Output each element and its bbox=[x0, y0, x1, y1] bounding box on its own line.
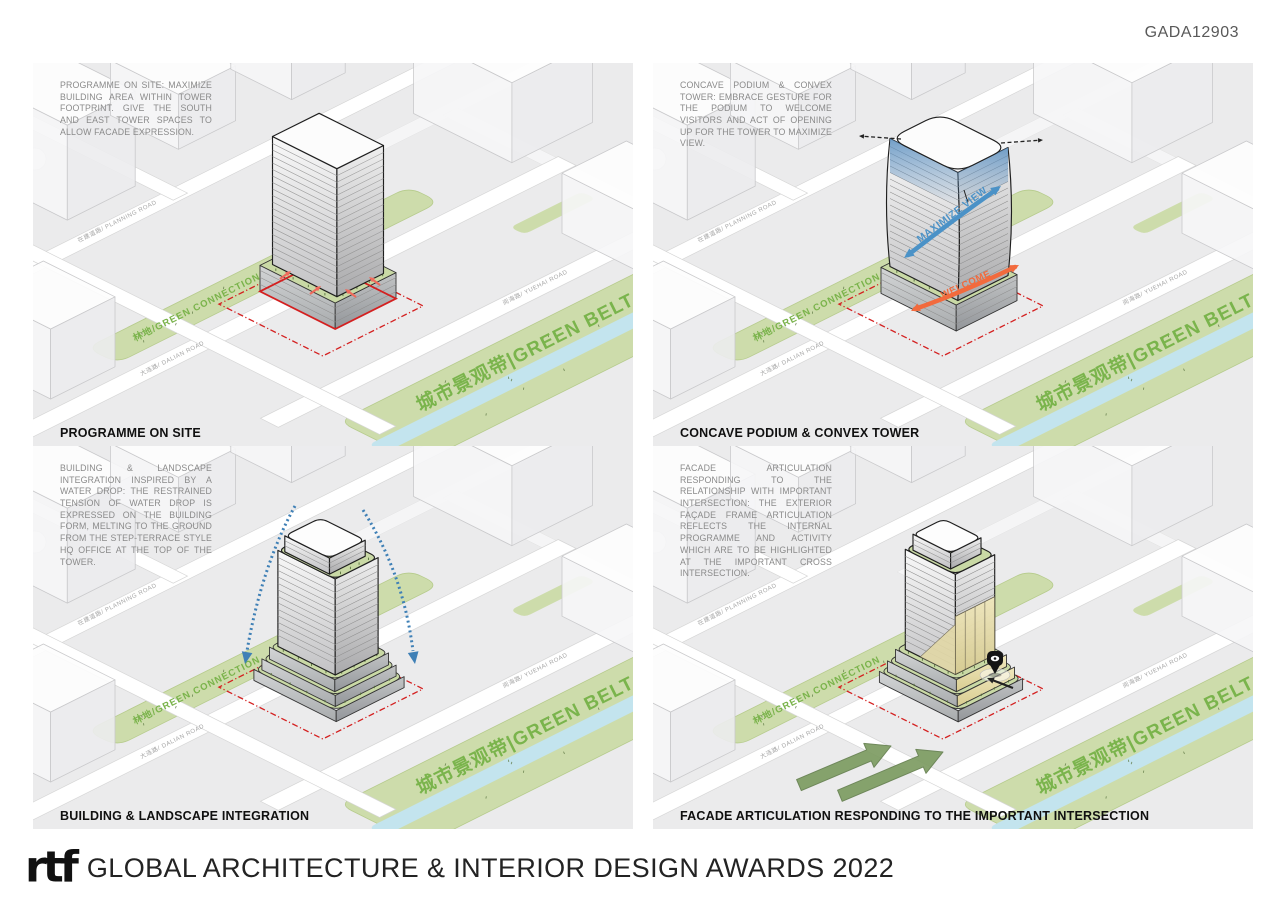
panel-description: PROGRAMME ON SITE: MAXIMIZE BUILDING ARE… bbox=[60, 80, 212, 138]
panel-description: CONCAVE PODIUM & CONVEX TOWER: EMBRACE G… bbox=[680, 80, 832, 150]
panel-title: CONCAVE PODIUM & CONVEX TOWER bbox=[680, 426, 919, 440]
footer: rtf GLOBAL ARCHITECTURE & INTERIOR DESIG… bbox=[25, 846, 894, 890]
presentation-board: GADA12903 在建道路/ PLANNING ROAD大连路/ DALIAN… bbox=[0, 0, 1273, 900]
panel-facade-articulation: 在建道路/ PLANNING ROAD大连路/ DALIAN ROAD阅海路/ … bbox=[653, 446, 1253, 829]
panel-title: FACADE ARTICULATION RESPONDING TO THE IM… bbox=[680, 809, 1149, 823]
submission-code: GADA12903 bbox=[1145, 24, 1239, 42]
panel-programme-on-site: 在建道路/ PLANNING ROAD大连路/ DALIAN ROAD阅海路/ … bbox=[33, 63, 633, 446]
awards-title: GLOBAL ARCHITECTURE & INTERIOR DESIGN AW… bbox=[87, 853, 894, 884]
tower-massing bbox=[260, 113, 396, 329]
panel-concave-podium-convex-tower: 在建道路/ PLANNING ROAD大连路/ DALIAN ROAD阅海路/ … bbox=[653, 63, 1253, 446]
panel-title: BUILDING & LANDSCAPE INTEGRATION bbox=[60, 809, 309, 823]
rtf-logo: rtf bbox=[25, 847, 75, 890]
panel-description: FACADE ARTICULATION RESPONDING TO THE RE… bbox=[680, 463, 832, 580]
panel-building-landscape-integration: 在建道路/ PLANNING ROAD大连路/ DALIAN ROAD阅海路/ … bbox=[33, 446, 633, 829]
panel-title: PROGRAMME ON SITE bbox=[60, 426, 201, 440]
panel-description: BUILDING & LANDSCAPE INTEGRATION INSPIRE… bbox=[60, 463, 212, 568]
